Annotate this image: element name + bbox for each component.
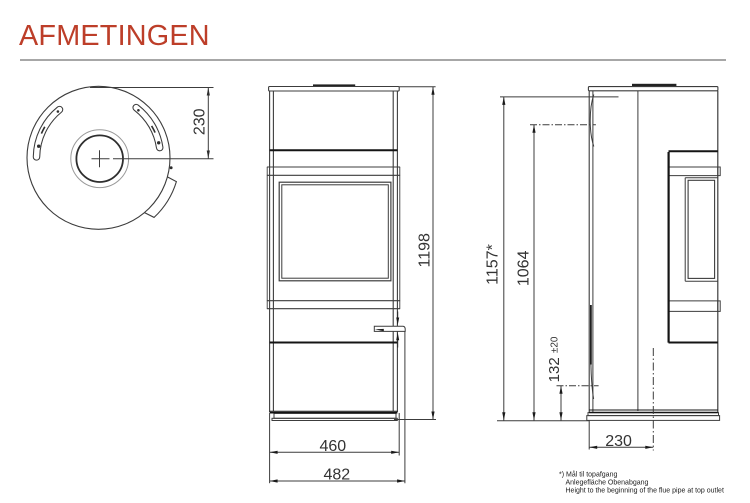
svg-text:*) Mål til topafgang: *) Mål til topafgang [559, 471, 617, 479]
svg-text:AFMETINGEN: AFMETINGEN [19, 20, 210, 52]
svg-text:230: 230 [605, 433, 632, 450]
svg-text:482: 482 [323, 466, 350, 483]
svg-text:1157*: 1157* [484, 244, 501, 285]
svg-text:460: 460 [319, 438, 346, 455]
svg-text:Anlegefläche Obenabgang: Anlegefläche Obenabgang [566, 480, 649, 487]
svg-text:230: 230 [192, 108, 209, 135]
svg-text:1198: 1198 [416, 233, 433, 268]
svg-text:1064: 1064 [516, 250, 533, 286]
svg-text:Height to the beginning of the: Height to the beginning of the flue pipe… [566, 488, 724, 495]
